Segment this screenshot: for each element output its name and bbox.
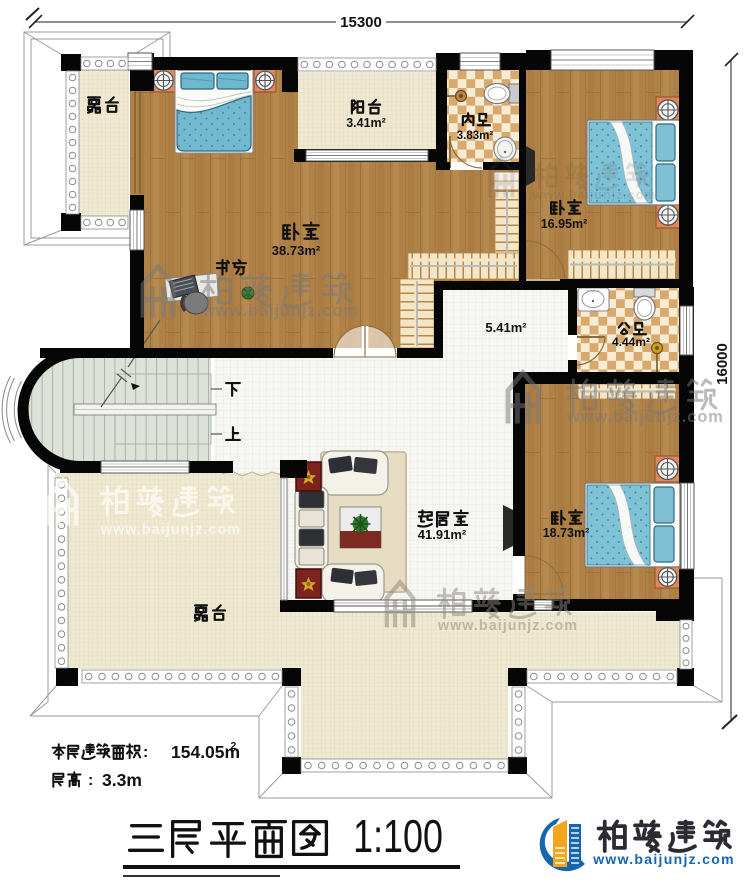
svg-text:41.91m²: 41.91m² bbox=[418, 527, 467, 542]
svg-text:www.baijunjz.com: www.baijunjz.com bbox=[592, 851, 735, 867]
svg-text:3.41m²: 3.41m² bbox=[346, 116, 386, 130]
svg-text::: : bbox=[88, 772, 93, 789]
svg-text:www.baijunjz.com: www.baijunjz.com bbox=[100, 522, 241, 538]
svg-text:www.baijunjz.com: www.baijunjz.com bbox=[566, 408, 724, 426]
svg-text:18.73m²: 18.73m² bbox=[543, 526, 590, 540]
svg-text:www.baijunjz.com: www.baijunjz.com bbox=[532, 188, 657, 202]
svg-text:4.44m²: 4.44m² bbox=[612, 335, 650, 349]
svg-text:38.73m²: 38.73m² bbox=[272, 243, 321, 258]
svg-text:3.83m²: 3.83m² bbox=[457, 130, 494, 142]
svg-text::: : bbox=[143, 744, 148, 761]
svg-text:15300: 15300 bbox=[340, 14, 382, 31]
svg-text:www.baijunjz.com: www.baijunjz.com bbox=[437, 618, 578, 634]
svg-text:16.95m²: 16.95m² bbox=[541, 217, 588, 231]
svg-text:5.41m²: 5.41m² bbox=[485, 320, 527, 335]
svg-text:www.baijunjz.com: www.baijunjz.com bbox=[201, 302, 359, 320]
svg-text:2: 2 bbox=[231, 740, 237, 752]
svg-text:1:100: 1:100 bbox=[353, 811, 443, 862]
svg-text:16000: 16000 bbox=[714, 343, 731, 385]
svg-text:3.3m: 3.3m bbox=[102, 770, 142, 790]
